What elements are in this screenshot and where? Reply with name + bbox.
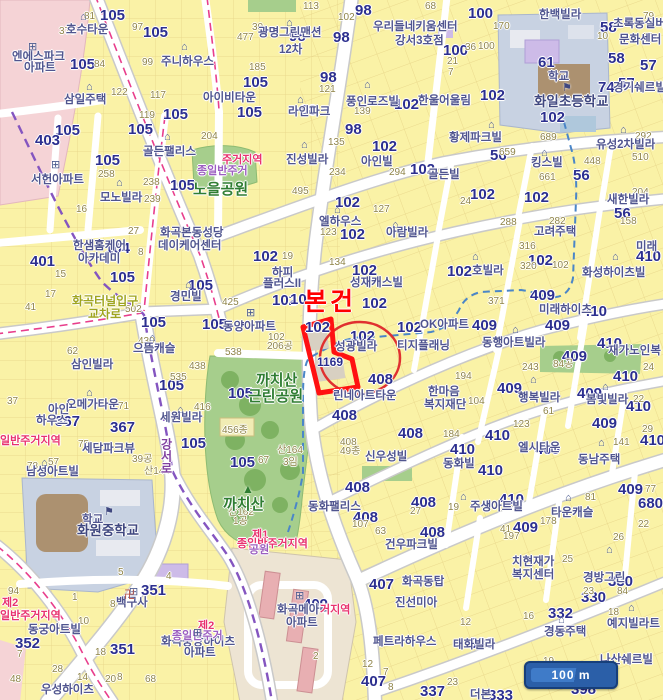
map-label: 아인빌 xyxy=(361,157,393,169)
map-label: 1169 xyxy=(317,356,343,368)
map-label: 367 xyxy=(110,420,135,435)
house-icon: ⌂ xyxy=(602,382,609,393)
map-label: 27 xyxy=(410,507,421,517)
map-label: 98 xyxy=(345,122,362,137)
map-label: 삼인빌라 xyxy=(71,360,113,372)
map-label: 봄빛빌라 xyxy=(586,395,628,407)
map-label: 68 xyxy=(145,675,156,685)
map-label: 21 xyxy=(447,57,458,67)
map-label: 425 xyxy=(222,298,239,308)
map-label: 238 xyxy=(143,178,160,188)
map-label: 71 xyxy=(118,402,129,412)
map-label: 239 xyxy=(144,195,161,205)
map-label: 98 xyxy=(355,3,372,18)
map-label: 20 xyxy=(105,675,116,685)
map-label: 행복빌라 xyxy=(518,393,560,405)
map-label: 121 xyxy=(319,85,336,95)
map-label: 204 xyxy=(201,132,218,142)
house-icon: ⌂ xyxy=(472,252,479,263)
map-label: 49종 xyxy=(340,447,360,457)
map-label: 26 xyxy=(613,533,624,543)
map-label: 화일초등학교 xyxy=(534,95,609,109)
map-label: 170 xyxy=(493,22,510,32)
map-label: 화곡동탑 xyxy=(402,577,444,589)
map-label: 102 xyxy=(447,264,472,279)
apt-icon: ⊞ xyxy=(28,42,37,53)
map-label: 초록동실버 xyxy=(613,19,663,31)
map-label: 강서로 xyxy=(160,438,172,474)
map-label: 5 xyxy=(118,568,124,578)
map-label: 12 xyxy=(460,618,471,628)
map-label: 12차 xyxy=(279,45,302,57)
map-label: 94 xyxy=(8,587,19,597)
map-label: 14 xyxy=(77,673,88,683)
map-label: 105 xyxy=(230,455,255,470)
map-label: 아카데미 xyxy=(78,254,120,266)
map-label: 22 xyxy=(633,395,644,405)
map-label: 18 xyxy=(608,608,619,618)
map-label: 102 xyxy=(397,320,422,335)
map-label: 아이비타운 xyxy=(203,93,256,105)
mtn-icon: ▲ xyxy=(242,483,254,495)
map-label: 495 xyxy=(292,187,309,197)
map-label: 84공 xyxy=(553,360,573,370)
map-label: 경기쉐르빌 xyxy=(613,83,663,95)
map-label: 18 xyxy=(95,648,106,658)
map-label: 316 xyxy=(519,242,536,252)
map-label: 주생아트빌 xyxy=(470,502,523,514)
map-label: 510 xyxy=(632,153,649,163)
map-label: 105 xyxy=(143,25,168,40)
map-label: 아파트 xyxy=(24,63,56,75)
house-icon: ⌂ xyxy=(116,178,123,189)
house-icon: ⌂ xyxy=(86,82,93,93)
map-label: 56 xyxy=(573,168,590,183)
map-label: 63 xyxy=(375,527,386,537)
map-label: 61 xyxy=(538,55,555,70)
map-label: 102 xyxy=(340,227,365,242)
map-label: 8 xyxy=(117,673,123,683)
map-label: 화성하이츠빌 xyxy=(582,268,645,280)
map-label: 풍인로즈빌 xyxy=(346,97,399,109)
map-label: 데이케어센터 xyxy=(158,241,221,253)
map-label: 동행아트빌라 xyxy=(482,338,545,350)
map-label: 2 xyxy=(313,652,319,662)
map-label: 67 xyxy=(258,456,269,466)
map-label: 100 xyxy=(468,6,493,21)
map-label: 아파트 xyxy=(286,618,318,630)
map-label: 재가노인복 xyxy=(608,346,661,358)
map-label: 진성빌라 xyxy=(286,155,328,167)
map-label: 123 xyxy=(320,228,337,238)
map-label: 410 xyxy=(640,433,663,448)
map-label: 경방그린 xyxy=(583,573,625,585)
flag-icon: ⚑ xyxy=(104,507,114,518)
map-label: 408 xyxy=(332,408,357,423)
map-label: 7 xyxy=(383,668,389,678)
map-label: 16 xyxy=(523,612,534,622)
map-label: 102 xyxy=(480,88,505,103)
map-label: 102 xyxy=(362,296,387,311)
map-label: 141 xyxy=(613,438,630,448)
map-label: 24 xyxy=(643,363,654,373)
map-label: 107 xyxy=(352,520,369,530)
map-label: 22 xyxy=(638,520,649,530)
map-label: 미래 xyxy=(636,242,657,254)
map-label: 한샘홈케어 xyxy=(73,241,126,253)
map-label: 36 xyxy=(465,43,476,53)
map-label: 세담파크뷰 xyxy=(82,444,135,456)
map-label: 동양아파트 xyxy=(223,322,276,334)
map-label: 407 xyxy=(369,577,394,592)
map-label: 77 xyxy=(645,485,656,495)
map-label: 10 xyxy=(597,32,608,42)
map-label: 448 xyxy=(584,157,601,167)
map-label: 337 xyxy=(420,684,445,699)
map-label: 680 xyxy=(638,496,663,511)
map-label: 골든빌 xyxy=(428,170,460,182)
map-label: 17 xyxy=(45,290,56,300)
map-label: 102 xyxy=(470,187,495,202)
house-icon: ⌂ xyxy=(392,220,399,231)
map-label: 105 xyxy=(95,153,120,168)
apt-icon: ⊞ xyxy=(51,160,60,171)
map-label: 127 xyxy=(373,205,390,215)
map-label: 234 xyxy=(329,168,346,178)
map-label: 258 xyxy=(98,170,115,180)
house-icon: ⌂ xyxy=(606,545,613,556)
map-label: 태화빌라 xyxy=(453,640,495,652)
house-icon: ⌂ xyxy=(297,95,304,106)
map-label: 408 xyxy=(368,372,393,387)
map-label: 105 xyxy=(100,8,125,23)
map-label: 27 xyxy=(128,227,139,237)
map-label: 7 xyxy=(448,68,454,78)
house-icon: ⌂ xyxy=(558,615,565,626)
map-label: 410 xyxy=(485,428,510,443)
map-label: 104 xyxy=(468,397,485,407)
map-label: 84 xyxy=(94,60,105,70)
map-label: 서헌아파트 xyxy=(31,175,84,187)
map-label: 102 xyxy=(305,320,330,335)
map-label: 일반주거지역 xyxy=(0,611,61,622)
map-label: 102 xyxy=(338,13,355,23)
map-label: 97 xyxy=(132,23,143,33)
map-label: 25 xyxy=(562,555,573,565)
map-label: 48 xyxy=(10,675,21,685)
map-label: 105 xyxy=(237,105,262,120)
house-icon: ⌂ xyxy=(164,132,171,143)
house-icon: ⌂ xyxy=(149,333,156,344)
map-label: 102 xyxy=(540,110,565,125)
map-label: 성광빌라 xyxy=(335,342,377,354)
map-label: 135 xyxy=(328,138,345,148)
map-label: 엘시타운 xyxy=(518,443,560,455)
map-label: 206공 xyxy=(267,342,293,352)
map-label: 아파트 xyxy=(184,648,216,660)
map-label: 113 xyxy=(303,2,319,12)
apt-icon: ⊞ xyxy=(193,628,202,639)
map-label: 123 xyxy=(513,420,530,430)
map-label: 한백빌라 xyxy=(539,10,581,22)
map-label: 동궁아트빌 xyxy=(28,625,81,637)
map-label: 58 xyxy=(608,51,625,66)
map-label: 105 xyxy=(181,436,206,451)
map-label: 동화빌 xyxy=(443,459,475,471)
map-labels-layer: 1051051051051051051051051051051051051051… xyxy=(0,0,663,700)
map-label: 24 xyxy=(460,197,471,207)
map-label: 102 xyxy=(352,263,377,278)
map-label: 광명그린맨션 xyxy=(258,28,321,40)
map-label: 화곡터널입구 xyxy=(72,295,138,307)
map-label: 건우파크빌 xyxy=(385,540,438,552)
map-label: 102 xyxy=(524,190,549,205)
house-icon: ⌂ xyxy=(512,325,519,336)
scale-bar-label: 100 m xyxy=(551,668,590,682)
apt-icon: ⊞ xyxy=(246,308,255,319)
map-label: 410 xyxy=(450,442,475,457)
map-label: 주니하우스 xyxy=(161,57,214,69)
map-label: 351 xyxy=(110,642,135,657)
map-label: 197 xyxy=(503,532,520,542)
map-label: 333 xyxy=(488,688,513,700)
map-label: 409 xyxy=(592,416,617,431)
map-label: 타운캐슬 xyxy=(551,508,593,520)
map-label: 134 xyxy=(329,258,346,268)
map-label: 371 xyxy=(488,297,505,307)
map-label: 410 xyxy=(478,463,503,478)
map-label: 81 xyxy=(585,493,596,503)
map-label: 408 xyxy=(420,525,445,540)
map-label: 28 xyxy=(52,665,63,675)
map-label: 학교 xyxy=(82,515,103,527)
map-label: 종일반주거지역 xyxy=(237,539,308,550)
map-label: 1 xyxy=(72,593,78,603)
map-label: 린네아트타운 xyxy=(333,391,396,403)
map-label: 409 xyxy=(545,318,570,333)
map-canvas[interactable]: 1051051051051051051051051051051051051051… xyxy=(0,0,663,700)
map-label: 한울어울림 xyxy=(418,96,471,108)
house-icon: ⌂ xyxy=(488,120,495,131)
map-label: 복지재단 xyxy=(424,400,466,412)
map-label: 84 xyxy=(617,587,628,597)
map-label: 고려주택 xyxy=(534,227,576,239)
map-label: 예지빌라트 xyxy=(607,619,660,631)
map-label: 근린공원 xyxy=(248,389,303,404)
map-label: 185 xyxy=(249,63,266,73)
map-label: 일반주거지역 xyxy=(0,436,61,447)
house-icon: ⌂ xyxy=(460,492,467,503)
house-icon: ⌂ xyxy=(565,493,572,504)
map-label: 새한빌라 xyxy=(607,195,649,207)
map-label: 으뜸캐슬 xyxy=(133,344,175,356)
map-label: 문화센터 xyxy=(619,35,661,47)
map-label: 102 xyxy=(372,139,397,154)
map-label: 409 xyxy=(530,288,555,303)
map-label: 139 xyxy=(354,107,371,117)
map-label: 한마음 xyxy=(428,387,460,399)
map-label: 산164 xyxy=(277,446,303,456)
map-label: 41 xyxy=(25,303,36,313)
map-label: 98 xyxy=(320,70,337,85)
map-label: 공원 xyxy=(249,545,269,556)
map-label: 치현재가 xyxy=(512,557,554,569)
map-label: 유성2차빌라 xyxy=(596,140,655,152)
map-label: 438 xyxy=(189,362,206,372)
map-label: 경민빌 xyxy=(170,292,202,304)
map-label: 117 xyxy=(150,91,166,101)
map-label: 408 xyxy=(345,480,370,495)
map-label: 페트라하우스 xyxy=(373,637,436,649)
map-label: 경동주택 xyxy=(544,627,586,639)
apt-icon: ⊞ xyxy=(295,591,304,602)
map-label: 105 xyxy=(163,107,188,122)
map-label: 호수타운 xyxy=(66,25,108,37)
map-label: 39공 xyxy=(132,455,152,465)
map-label: 294 xyxy=(389,168,406,178)
map-label: 403 xyxy=(35,133,60,148)
map-label: 23 xyxy=(447,678,458,688)
house-icon: ⌂ xyxy=(177,405,184,416)
map-label: 102 xyxy=(552,261,569,271)
map-label: 57 xyxy=(640,58,657,73)
map-label: 535 xyxy=(170,373,187,383)
map-label: 689 xyxy=(540,133,557,143)
map-label: 194 xyxy=(455,372,472,382)
house-icon: ⌂ xyxy=(185,280,192,291)
map-label: 모노빌라 xyxy=(100,193,142,205)
map-label: 진선미아 xyxy=(395,598,437,610)
map-label: 401 xyxy=(30,254,55,269)
map-label: 미래하이츠 xyxy=(539,305,592,317)
scale-bar: 100 m xyxy=(524,661,618,689)
map-label: 종일반주거 xyxy=(197,166,248,177)
map-label: 122 xyxy=(111,88,128,98)
house-icon: ⌂ xyxy=(181,42,188,53)
house-icon: ⌂ xyxy=(598,438,605,449)
map-label: 243 xyxy=(522,363,539,373)
map-label: 320 xyxy=(520,262,537,272)
map-label: 4 xyxy=(166,572,172,582)
house-icon: ⌂ xyxy=(541,148,548,159)
subject-label: 본건 xyxy=(304,290,356,315)
house-icon: ⌂ xyxy=(620,125,627,136)
flag-icon: ⚑ xyxy=(562,83,572,94)
map-label: 288 xyxy=(500,218,517,228)
house-icon: ⌂ xyxy=(612,252,619,263)
map-label: 거지역 xyxy=(320,605,350,616)
map-label: 68 xyxy=(425,2,436,12)
map-label: 105 xyxy=(170,178,195,193)
map-label: 105 xyxy=(70,57,95,72)
map-label: 1공 xyxy=(233,517,248,527)
map-label: 661 xyxy=(539,173,556,183)
map-label: 황제파크빌 xyxy=(449,133,502,145)
map-label: 라인파크 xyxy=(288,107,330,119)
house-icon: ⌂ xyxy=(301,140,308,151)
map-label: 우성하이츠 xyxy=(41,685,94,697)
map-label: 삼일주택 xyxy=(64,95,106,107)
map-label: 플러스II xyxy=(263,279,301,291)
house-icon: ⌂ xyxy=(628,603,635,614)
map-label: 3임 xyxy=(283,458,298,468)
map-label: 538 xyxy=(225,348,242,358)
map-label: 골든팰리스 xyxy=(143,147,196,159)
map-label: 성재캐스빌 xyxy=(350,278,403,290)
map-label: 23 xyxy=(583,587,594,597)
map-label: 8 xyxy=(388,683,394,693)
map-label: 408 xyxy=(398,426,423,441)
map-label: 신우성빌 xyxy=(365,452,407,464)
map-label: 복지센터 xyxy=(512,570,554,582)
map-label: 킹스빌 xyxy=(531,158,563,170)
map-label: 제2 xyxy=(2,598,18,609)
map-label: 98 xyxy=(333,30,350,45)
map-label: 8 xyxy=(138,248,144,258)
map-label: 29 xyxy=(642,425,653,435)
map-label: 409 xyxy=(472,318,497,333)
map-label: 화곡본동성당 xyxy=(160,228,223,240)
map-label: 410 xyxy=(613,369,638,384)
house-icon: ⌂ xyxy=(364,80,371,91)
map-label: 우리들네키움센터 xyxy=(373,22,458,34)
map-label: 오메가타운 xyxy=(66,400,119,412)
map-label: 19 xyxy=(448,503,459,513)
map-label: 105 xyxy=(128,122,153,137)
map-label: 까치산 xyxy=(223,497,264,512)
map-label: 477 xyxy=(237,33,254,43)
map-label: 456종 xyxy=(222,426,248,436)
map-label: 351 xyxy=(141,583,166,598)
map-label: 408 xyxy=(340,438,357,448)
map-label: 남성아트빌 xyxy=(26,467,79,479)
map-label: 8 xyxy=(110,600,116,610)
map-label: 105 xyxy=(110,270,135,285)
map-label: 659 xyxy=(499,148,516,158)
house-icon: ⌂ xyxy=(80,12,87,23)
map-label: 99 xyxy=(142,58,153,68)
map-label: 184 xyxy=(443,430,460,440)
map-label: 102 xyxy=(253,249,278,264)
map-label: OK아파트 xyxy=(420,320,469,332)
map-label: 100 xyxy=(478,42,495,52)
map-label: 티지플래닝 xyxy=(397,341,450,353)
map-label: 엘하우스 xyxy=(319,217,361,229)
map-label: 16 xyxy=(76,205,87,215)
house-icon: ⌂ xyxy=(41,458,48,469)
map-label: 더본 xyxy=(470,690,491,700)
map-label: 105 xyxy=(141,315,166,330)
map-label: 119 xyxy=(139,111,155,121)
map-label: 158 xyxy=(620,217,637,227)
house-icon: ⌂ xyxy=(86,388,93,399)
map-label: 15 xyxy=(55,270,66,280)
map-label: 동화팰리스 xyxy=(308,502,361,514)
map-label: 노을공원 xyxy=(193,182,248,197)
map-label: 동남주택 xyxy=(578,455,620,467)
map-label: 105 xyxy=(243,75,268,90)
map-label: 교차로 xyxy=(88,308,121,320)
map-label: 호빌라 xyxy=(472,266,504,278)
map-label: 까치산 xyxy=(256,373,297,388)
map-label: 62 xyxy=(67,347,78,357)
map-label: 강서3호점 xyxy=(395,36,444,48)
map-label: 19 xyxy=(282,252,293,262)
house-icon: ⌂ xyxy=(530,375,537,386)
house-icon: ⌂ xyxy=(334,205,341,216)
map-label: 12 xyxy=(362,660,373,670)
map-label: 하우스 xyxy=(36,416,68,428)
